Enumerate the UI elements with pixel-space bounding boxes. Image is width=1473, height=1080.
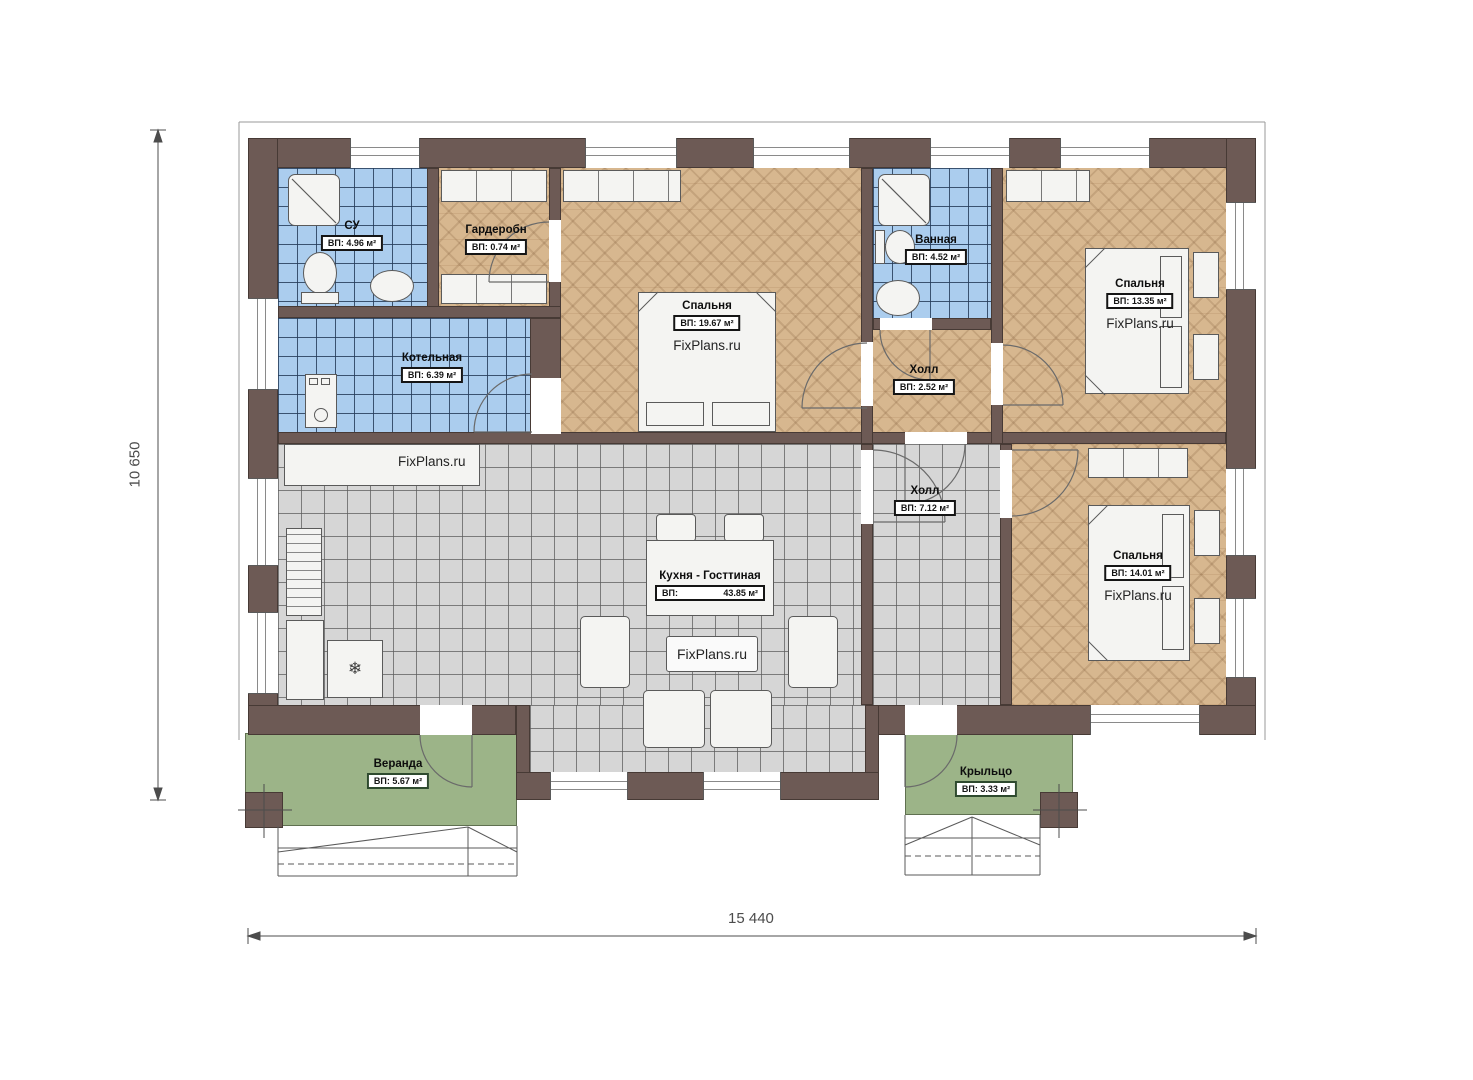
- window: [930, 138, 1010, 168]
- armchair: [580, 616, 630, 688]
- boiler-vent: [321, 378, 330, 385]
- room-area-badge: ВП: 4.52 м²: [905, 249, 967, 265]
- room-name: СУ: [321, 220, 383, 233]
- dimension-width-label: 15 440: [728, 910, 774, 927]
- room-label-hall: Холл ВП: 7.12 м²: [894, 485, 956, 516]
- room-name: Гардеробн: [465, 224, 527, 237]
- room-name: Спальня: [1106, 278, 1174, 291]
- room-name: Холл: [894, 485, 956, 498]
- room-name: Крыльцо: [955, 766, 1017, 779]
- window: [248, 478, 278, 566]
- door-opening: [905, 705, 957, 735]
- room-name: Ванная: [905, 234, 967, 247]
- floor-hall: [873, 444, 1012, 705]
- wardrobe-cabinet: [563, 170, 681, 202]
- room-area-badge: ВП: 14.01 м²: [1104, 565, 1171, 581]
- room-name: Холл: [893, 364, 955, 377]
- door-opening: [861, 450, 873, 524]
- room-label-bedroom1: Спальня ВП: 19.67 м² FixPlans.ru: [673, 300, 741, 353]
- window: [1226, 598, 1256, 678]
- snowflake-icon: ❄: [348, 659, 362, 679]
- watermark: FixPlans.ru: [398, 454, 466, 469]
- door-opening: [861, 342, 873, 406]
- shower: [878, 174, 930, 226]
- nightstand: [1193, 334, 1219, 380]
- room-area-badge: ВП: 4.96 м²: [321, 235, 383, 251]
- watermark: FixPlans.ru: [1104, 588, 1172, 603]
- nightstand: [1193, 252, 1219, 298]
- room-label-veranda: Веранда ВП: 5.67 м²: [367, 758, 429, 789]
- room-label-bedroom3: Спальня ВП: 14.01 м² FixPlans.ru: [1104, 550, 1172, 603]
- pillow: [712, 402, 770, 426]
- window: [248, 612, 278, 694]
- room-label-kitchen: Кухня - Госттиная ВП: 43.85 м²: [655, 570, 765, 601]
- floor-plan: ❄: [0, 0, 1473, 1080]
- watermark: FixPlans.ru: [1106, 316, 1174, 331]
- room-area-badge: ВП: 7.12 м²: [894, 500, 956, 516]
- room-label-boiler: Котельная ВП: 6.39 м²: [401, 352, 463, 383]
- boiler-dial: [314, 408, 328, 422]
- room-area-badge: ВП: 19.67 м²: [673, 315, 740, 331]
- room-label-su: СУ ВП: 4.96 м²: [321, 220, 383, 251]
- porch-post: [1040, 792, 1078, 828]
- nightstand: [1194, 598, 1220, 644]
- room-label-wardrobe: Гардеробн ВП: 0.74 м²: [465, 224, 527, 255]
- door-opening: [420, 705, 472, 735]
- room-area-badge: ВП: 0.74 м²: [465, 239, 527, 255]
- toilet: [303, 252, 337, 294]
- toilet-tank: [875, 230, 885, 264]
- room-label-bedroom2: Спальня ВП: 13.35 м² FixPlans.ru: [1106, 278, 1174, 331]
- nightstand: [1194, 510, 1220, 556]
- pillow: [1160, 326, 1182, 388]
- pantry-cabinet: [286, 528, 322, 616]
- room-label-bathroom: Ванная ВП: 4.52 м²: [905, 234, 967, 265]
- room-name: Котельная: [401, 352, 463, 365]
- room-name: Спальня: [673, 300, 741, 313]
- room-name: Кухня - Госттиная: [655, 570, 765, 583]
- room-name: Спальня: [1104, 550, 1172, 563]
- wardrobe-cabinet: [1088, 448, 1188, 478]
- door-opening: [905, 432, 967, 444]
- chair: [724, 514, 764, 542]
- window: [1226, 202, 1256, 290]
- wardrobe-cabinet: [1006, 170, 1090, 202]
- window: [753, 138, 850, 168]
- boiler-vent: [309, 378, 318, 385]
- room-area-badge: ВП: 13.35 м²: [1106, 293, 1173, 309]
- wall-segment: [278, 306, 561, 318]
- window: [350, 138, 420, 168]
- shower: [288, 174, 340, 226]
- kitchen-cabinet: [286, 620, 324, 700]
- door-opening: [1000, 450, 1012, 518]
- room-area-badge: ВП: 6.39 м²: [401, 367, 463, 383]
- fridge: ❄: [327, 640, 383, 698]
- window: [585, 138, 677, 168]
- porch-steps: [905, 815, 1040, 875]
- wall-segment: [427, 168, 439, 318]
- window: [248, 298, 278, 390]
- window: [1060, 138, 1150, 168]
- room-area-badge: ВП: 43.85 м²: [655, 585, 765, 601]
- room-name: Веранда: [367, 758, 429, 771]
- room-area-badge: ВП: 3.33 м²: [955, 781, 1017, 797]
- wall-segment: [248, 705, 516, 735]
- veranda-post: [245, 792, 283, 828]
- window: [550, 772, 628, 800]
- wardrobe-cabinet: [441, 274, 547, 304]
- sink: [876, 280, 920, 316]
- room-area-badge: ВП: 5.67 м²: [367, 773, 429, 789]
- veranda-steps: [278, 826, 517, 876]
- sink: [370, 270, 414, 302]
- watermark: FixPlans.ru: [673, 338, 741, 353]
- window: [1226, 468, 1256, 556]
- dimension-height-label: 10 650: [126, 442, 143, 488]
- door-opening: [549, 220, 561, 282]
- room-label-hall-small: Холл ВП: 2.52 м²: [893, 364, 955, 395]
- room-label-porch: Крыльцо ВП: 3.33 м²: [955, 766, 1017, 797]
- wardrobe-cabinet: [441, 170, 547, 202]
- door-opening: [531, 378, 561, 434]
- door-opening: [880, 318, 932, 330]
- room-area-value: 43.85 м²: [723, 588, 758, 598]
- room-area-prefix: ВП:: [662, 588, 678, 598]
- window: [703, 772, 781, 800]
- door-opening: [991, 343, 1003, 405]
- pillow: [646, 402, 704, 426]
- room-area-badge: ВП: 2.52 м²: [893, 379, 955, 395]
- window: [1090, 705, 1200, 735]
- watermark-box: FixPlans.ru: [666, 636, 758, 672]
- armchair: [788, 616, 838, 688]
- armchair: [643, 690, 705, 748]
- armchair: [710, 690, 772, 748]
- wall-segment: [278, 432, 1226, 444]
- toilet-tank: [301, 292, 339, 304]
- chair: [656, 514, 696, 542]
